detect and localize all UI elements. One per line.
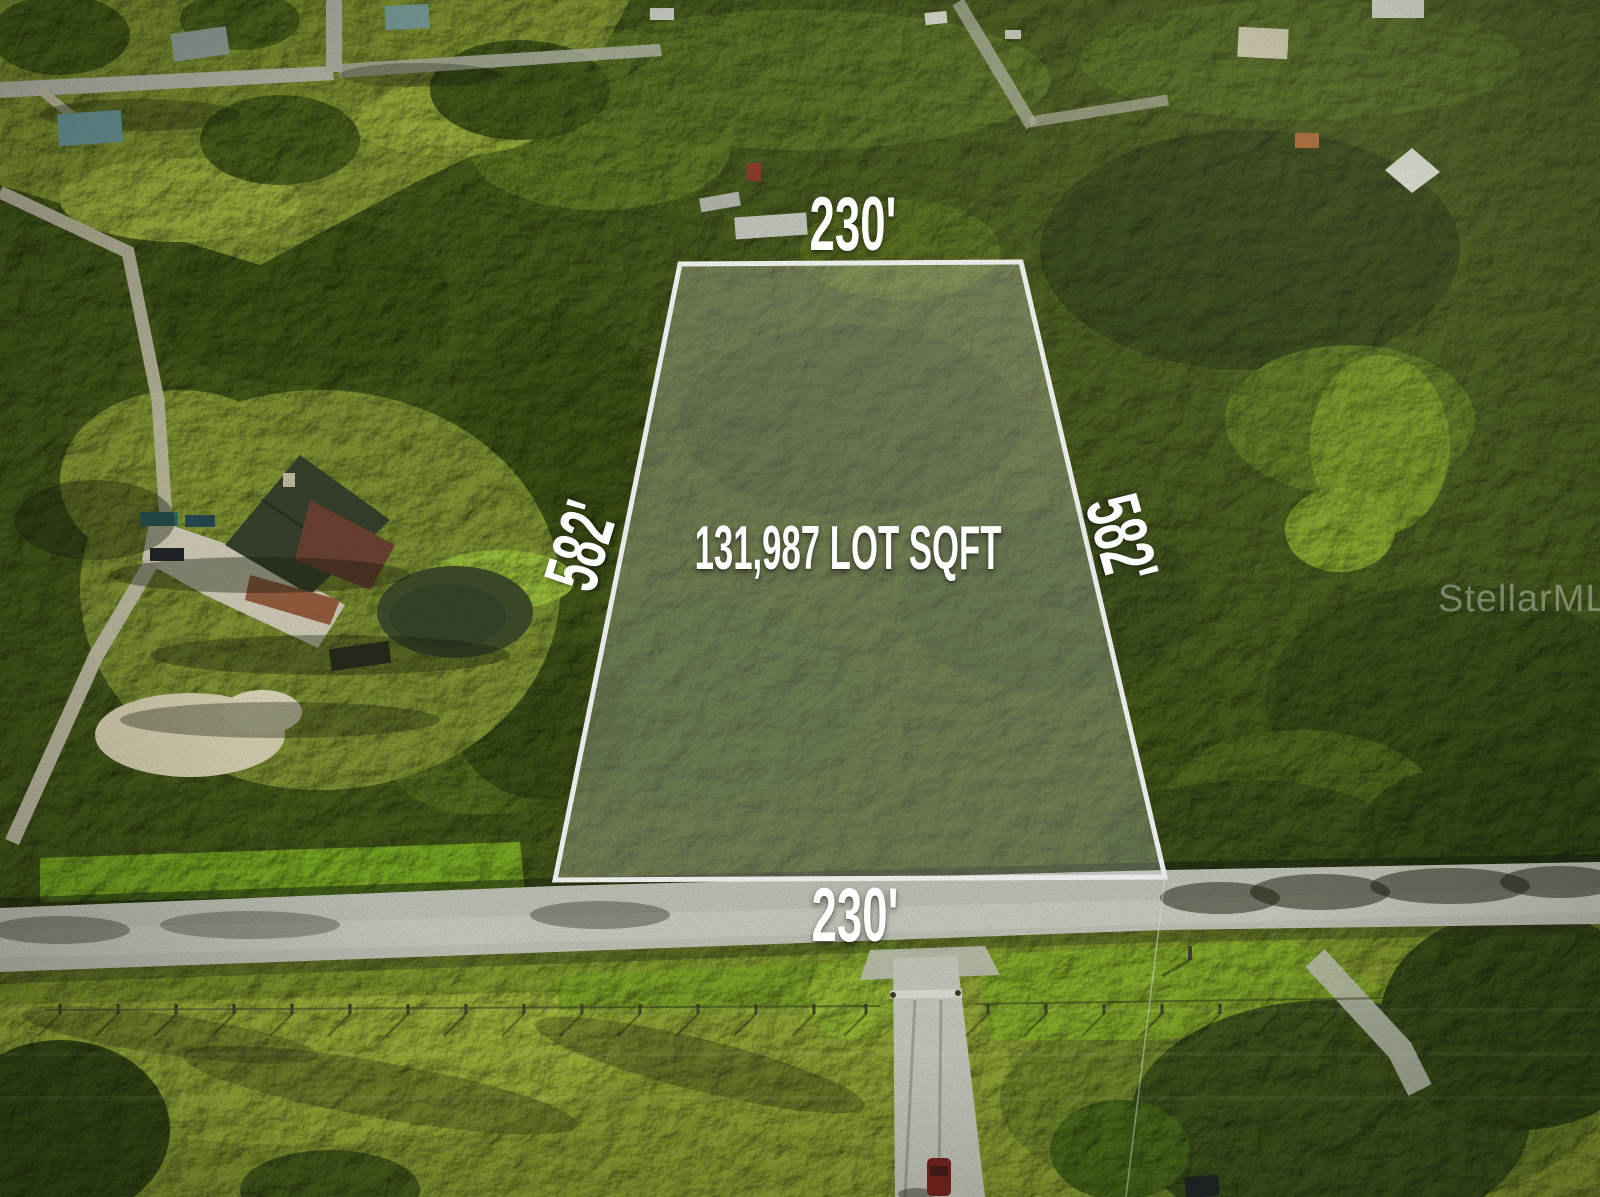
mls-watermark: StellarMLS: [1438, 578, 1600, 621]
lot-area-label: 131,987 LOT SQFT: [574, 518, 1122, 580]
bottom-dimension-label: 230': [783, 878, 928, 954]
aerial-scene: [0, 0, 1600, 1197]
top-dimension-label: 230': [781, 187, 926, 263]
grain-overlay: [0, 0, 1600, 1197]
lot-area-text: 131,987 LOT SQFT: [695, 518, 1002, 580]
top-dimension-text: 230': [810, 187, 897, 263]
bottom-dimension-text: 230': [812, 878, 899, 954]
aerial-photo: 230' 230' 582' 582' 131,987 LOT SQFT Ste…: [0, 0, 1600, 1197]
